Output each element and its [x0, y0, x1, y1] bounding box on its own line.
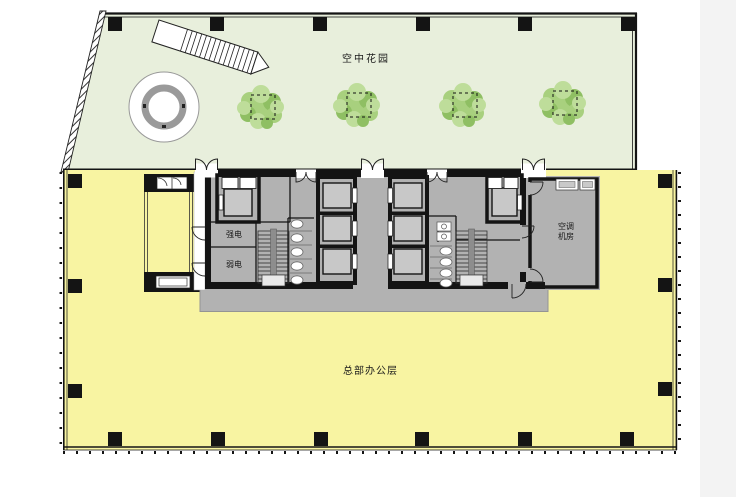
wc-fixture	[291, 276, 303, 284]
ac-door-gap-top	[528, 182, 534, 195]
elevator-car	[394, 249, 422, 274]
elevator-door	[353, 188, 358, 203]
elevator-door	[388, 221, 393, 236]
elevator-door	[388, 254, 393, 269]
ac-room-label: 空调 机房	[556, 222, 576, 242]
column	[658, 278, 672, 292]
office-floor-label: 总部办公层	[343, 362, 398, 377]
sky-garden-label: 空中花园	[342, 50, 390, 65]
ring-tick	[162, 125, 166, 128]
ac-room-label-line2: 机房	[556, 232, 576, 242]
wc-fixture	[440, 258, 452, 266]
south-opening-right	[508, 282, 526, 289]
elevator-car	[492, 188, 517, 216]
floor-plan-drawing	[0, 0, 736, 497]
elevator-car	[323, 216, 351, 241]
column	[68, 384, 82, 398]
column	[518, 432, 532, 446]
wc-fixture	[440, 247, 452, 255]
column	[108, 17, 122, 31]
column	[68, 279, 82, 293]
weak-power-room-label: 弱电	[226, 259, 242, 270]
ac-room-label-line1: 空调	[556, 222, 576, 232]
elevator-door	[518, 195, 523, 210]
column	[415, 432, 429, 446]
elevator-bank-left	[318, 177, 357, 283]
lobby-south-opening	[353, 282, 388, 289]
door-gap-west	[195, 164, 218, 178]
core-south-apron	[200, 290, 548, 312]
door-gap-lobby	[361, 164, 384, 179]
floor-plan: 空中花园 总部办公层 强电 弱电 空调 机房	[0, 0, 736, 497]
column	[210, 17, 224, 31]
riser-box-north	[144, 174, 200, 192]
service-core	[192, 159, 600, 312]
elevator-car	[323, 183, 351, 208]
elevator-car	[394, 183, 422, 208]
elevator-door	[353, 254, 358, 269]
page-margin	[700, 0, 736, 497]
ac-door-gap-bottom	[528, 268, 534, 281]
wc-fixture	[440, 279, 452, 287]
column	[658, 174, 672, 188]
column	[314, 432, 328, 446]
wc-fixture	[291, 262, 303, 270]
column	[620, 432, 634, 446]
sky-garden-region	[61, 11, 637, 172]
elevator-bank-right	[388, 177, 427, 283]
column	[518, 17, 532, 31]
elevator-car	[323, 249, 351, 274]
elevator-car	[224, 189, 252, 216]
elevator-door	[388, 188, 393, 203]
column	[621, 17, 635, 31]
elevator-door	[219, 195, 223, 210]
sink-bowl	[442, 234, 447, 239]
door-gap-east	[521, 164, 546, 179]
column	[68, 174, 82, 188]
strong-power-room-label: 强电	[226, 229, 242, 240]
column	[416, 17, 430, 31]
elevator-door	[353, 221, 358, 236]
column	[658, 382, 672, 396]
ac-top-cells	[556, 179, 595, 190]
wc-fixture	[440, 269, 452, 277]
round-feature	[129, 72, 199, 142]
sink-bowl	[442, 224, 447, 229]
column	[108, 432, 122, 446]
ring-tick	[182, 104, 185, 108]
elevator-car	[394, 216, 422, 241]
wc-fixture	[291, 248, 303, 256]
column	[211, 432, 225, 446]
ring-tick	[143, 104, 146, 108]
column	[313, 17, 327, 31]
wc-fixture	[291, 234, 303, 242]
wc-fixture	[291, 220, 303, 228]
riser-box-south	[144, 272, 200, 292]
core-west-wall	[205, 170, 211, 289]
